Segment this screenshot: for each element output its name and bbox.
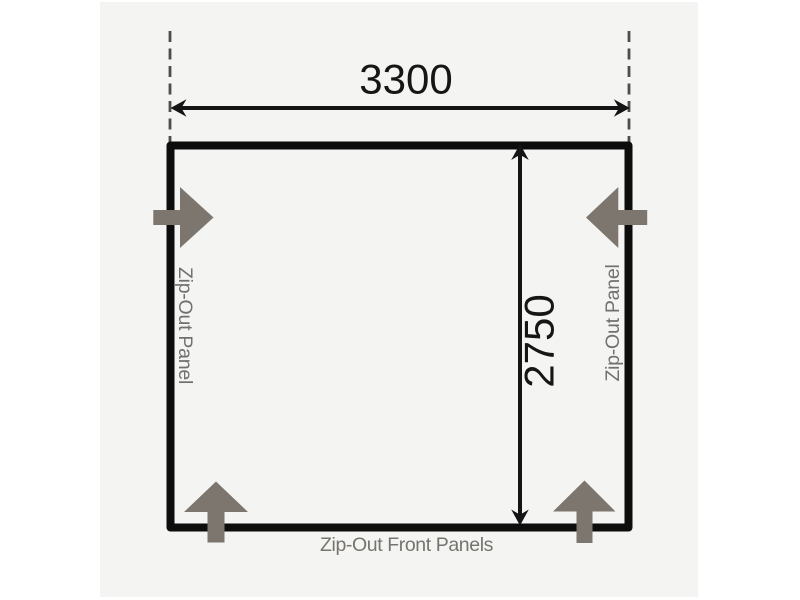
svg-text:Zip-Out Front Panels: Zip-Out Front Panels [320, 534, 494, 556]
svg-text:2750: 2750 [515, 294, 562, 387]
svg-text:Zip-Out Panel: Zip-Out Panel [602, 264, 624, 381]
svg-text:3300: 3300 [359, 56, 452, 103]
svg-text:Zip-Out Panel: Zip-Out Panel [174, 267, 196, 384]
